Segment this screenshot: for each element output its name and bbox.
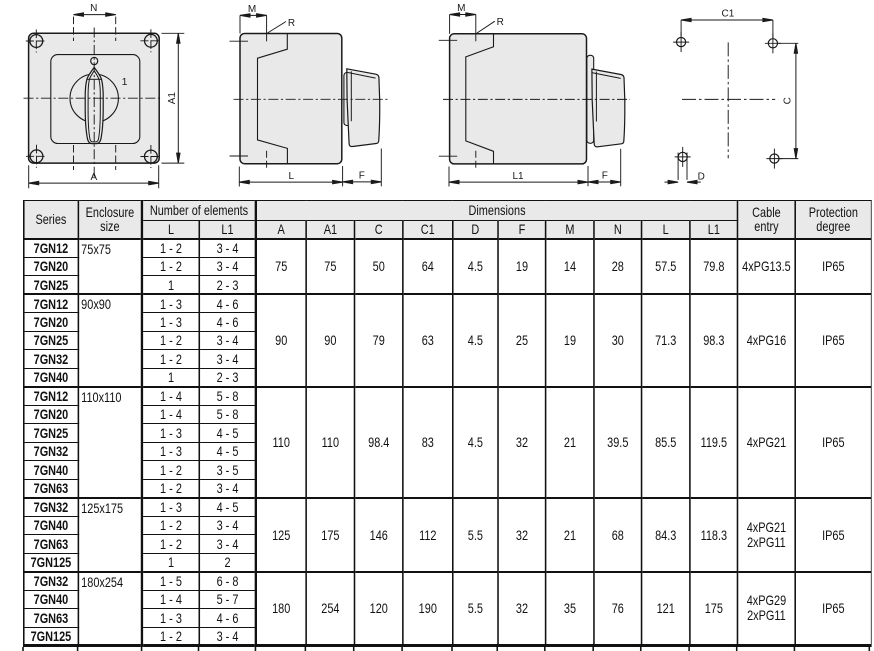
svg-text:F: F [359,171,365,182]
svg-text:F: F [602,171,608,182]
svg-text:R: R [288,18,295,29]
svg-text:M: M [248,4,256,15]
svg-text:R: R [497,17,504,28]
svg-text:L1: L1 [512,171,524,182]
svg-text:L: L [289,171,295,182]
svg-text:C: C [783,97,794,104]
svg-text:A1: A1 [167,92,178,105]
svg-text:N: N [90,3,97,14]
svg-text:C1: C1 [722,9,735,20]
svg-text:D: D [698,172,705,183]
svg-text:1: 1 [122,76,128,88]
svg-text:M: M [457,3,465,14]
svg-text:A: A [90,172,97,183]
